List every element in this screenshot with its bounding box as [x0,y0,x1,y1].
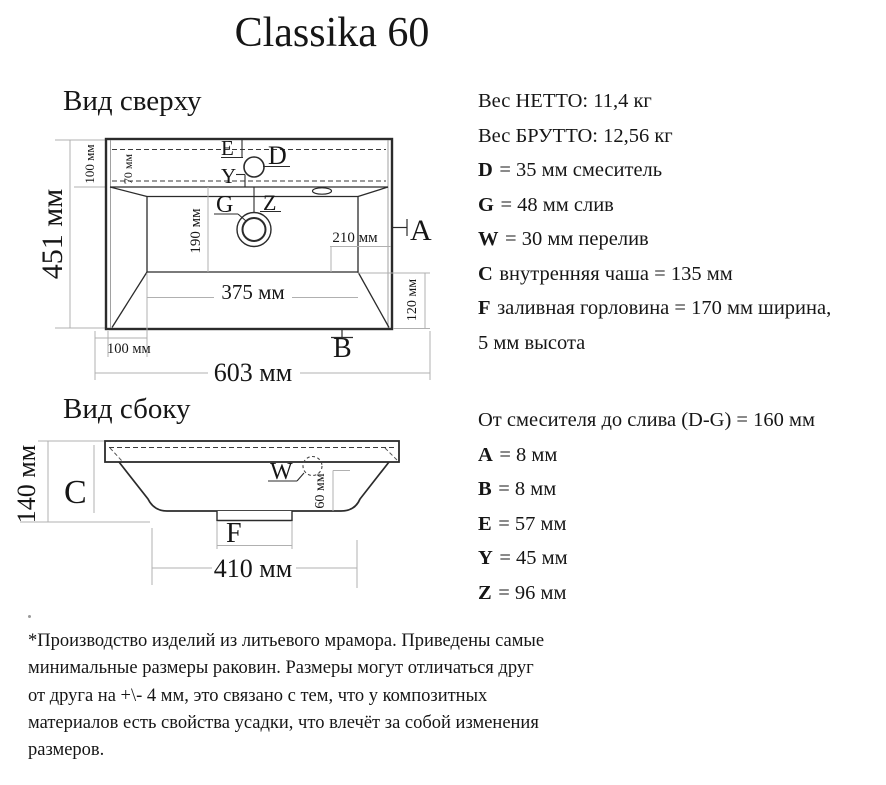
faucet-hole [244,157,264,177]
spec-a: A= 8 мм [478,438,878,473]
spec-y: Y= 45 мм [478,541,878,576]
spec-d-key: D [478,159,493,181]
dim-603-label: 603 мм [214,358,292,387]
specs-upper-block: Вес НЕТТО: 11,4 кг Вес БРУТТО: 12,56 кг … [478,84,878,360]
scan-artifact [28,615,31,618]
spec-a-value: = 8 мм [499,444,557,466]
spec-d: D= 35 мм смеситель [478,153,878,188]
footnote-line: минимальные размеры раковин. Размеры мог… [28,655,568,682]
dim-140-label: 140 мм [14,445,41,523]
specs-lower-block: От смесителя до слива (D-G) = 160 мм A= … [478,403,878,610]
dim-190-label: 190 мм [188,208,204,254]
spec-g: G= 48 мм слив [478,188,878,223]
spec-w: W= 30 мм перелив [478,222,878,257]
spec-c-value: внутренняя чаша = 135 мм [499,263,732,285]
weight-net: Вес НЕТТО: 11,4 кг [478,84,878,119]
footnote-line: от друга на +\- 4 мм, это связано с тем,… [28,683,568,710]
spec-e-value: = 57 мм [498,513,566,535]
spec-b: B= 8 мм [478,472,878,507]
label-e: E [221,136,234,160]
label-w: W [270,459,293,485]
label-y: Y [221,164,236,188]
top-view-drawing: 451 мм 100 мм 70 мм E D Y [18,130,440,392]
spec-f-value: заливная горловина = 170 мм ширина, [497,297,831,319]
dim-410-label: 410 мм [214,554,292,583]
spec-e: E= 57 мм [478,507,878,542]
spec-g-key: G [478,194,494,216]
label-a-leader [393,219,407,236]
spec-d-value: = 35 мм смеситель [499,159,662,181]
spec-b-key: B [478,478,492,500]
spec-c: Cвнутренняя чаша = 135 мм [478,257,878,292]
dim-60-label: 60 мм [313,473,328,508]
dim-100-bottom-label: 100 мм [107,341,151,357]
label-b: B [333,333,352,364]
side-view-drawing: 140 мм C W 60 мм F 410 мм [14,425,440,600]
spec-c-key: C [478,263,493,285]
spec-sheet: { "title": "Classika 60", "top_view": { … [0,0,886,785]
spec-y-key: Y [478,547,493,569]
label-g: G [216,192,233,218]
dim-210-label: 210 мм [332,230,378,246]
weight-gross: Вес БРУТТО: 12,56 кг [478,119,878,154]
spec-e-key: E [478,513,492,535]
dim-375-label: 375 мм [221,280,284,304]
spec-f-line2: 5 мм высота [478,326,878,361]
label-d: D [268,141,287,170]
overflow-hole [313,188,332,194]
spec-y-value: = 45 мм [499,547,567,569]
spec-f: Fзаливная горловина = 170 мм ширина, [478,291,878,326]
label-c: C [64,474,87,511]
spec-z-value: = 96 мм [498,582,566,604]
label-f: F [226,518,242,549]
dim-60 [333,471,350,512]
label-z: Z [263,190,276,215]
dim-120-label: 120 мм [405,279,420,321]
spec-z-key: Z [478,582,492,604]
footnote-line: *Производство изделий из литьевого мрамо… [28,628,568,655]
page-title: Classika 60 [0,12,664,54]
top-view-heading: Вид сверху [63,87,202,116]
spec-w-key: W [478,228,499,250]
spec-b-value: = 8 мм [498,478,556,500]
footnote: *Производство изделий из литьевого мрамо… [28,628,568,764]
dim-70-label: 70 мм [121,154,135,185]
dim-100-left-label: 100 мм [82,144,97,183]
spec-g-value: = 48 мм слив [501,194,614,216]
spec-distance: От смесителя до слива (D-G) = 160 мм [478,403,878,438]
footnote-line: размеров. [28,737,568,764]
spec-z: Z= 96 мм [478,576,878,611]
bowl-profile [119,462,389,511]
spec-a-key: A [478,444,493,466]
dim-451-label: 451 мм [36,189,69,279]
spec-f-key: F [478,297,491,319]
side-view-heading: Вид сбоку [63,395,191,424]
rim-outline [105,441,399,462]
label-a: A [410,214,432,247]
spec-w-value: = 30 мм перелив [505,228,649,250]
footnote-line: материалов есть свойства усадки, что вле… [28,710,568,737]
